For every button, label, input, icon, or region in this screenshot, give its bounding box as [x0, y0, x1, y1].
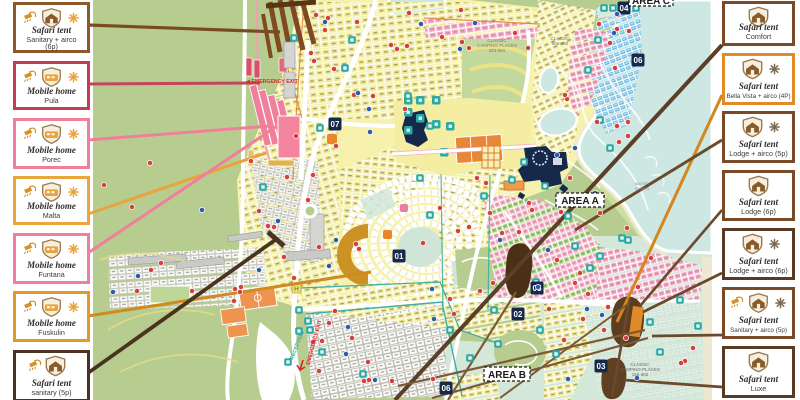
svg-text:Pula: Pula: [44, 96, 58, 105]
svg-text:424-561: 424-561: [489, 48, 506, 53]
svg-text:(6p): (6p): [45, 42, 58, 51]
svg-text:GAMES: GAMES: [635, 186, 650, 191]
svg-text:AREA C: AREA C: [632, 0, 670, 7]
svg-text:03: 03: [597, 362, 606, 371]
svg-text:AREA B: AREA B: [488, 370, 526, 381]
svg-text:Funtana: Funtana: [38, 270, 64, 279]
svg-text:Lodge (6p): Lodge (6p): [741, 207, 776, 216]
svg-text:Bella Vista + airco (4P): Bella Vista + airco (4P): [726, 93, 790, 100]
svg-text:Fuskulin: Fuskulin: [38, 328, 65, 337]
svg-text:Mobile home: Mobile home: [26, 145, 76, 155]
svg-text:Mobile home: Mobile home: [26, 260, 76, 270]
svg-text:Safari tent: Safari tent: [739, 22, 779, 32]
svg-text:07: 07: [331, 120, 340, 129]
svg-text:Lodge + airco (5p): Lodge + airco (5p): [729, 149, 788, 158]
svg-text:Lodge + airco (6p): Lodge + airco (6p): [729, 266, 788, 275]
svg-text:Safari tent: Safari tent: [739, 81, 779, 91]
svg-text:Mobile home: Mobile home: [26, 201, 76, 211]
svg-text:Safari tent: Safari tent: [739, 374, 779, 384]
svg-text:04: 04: [620, 4, 629, 13]
svg-text:06: 06: [442, 384, 451, 393]
svg-text:H: H: [294, 286, 299, 293]
svg-text:Safari tent: Safari tent: [32, 25, 72, 35]
svg-text:Comfort: Comfort: [746, 32, 772, 41]
svg-text:AREA A: AREA A: [561, 196, 599, 207]
svg-text:Mobile home: Mobile home: [26, 318, 76, 328]
svg-text:Porec: Porec: [42, 155, 61, 164]
svg-text:01: 01: [395, 252, 404, 261]
svg-text:06: 06: [634, 56, 643, 65]
svg-text:Safari tent: Safari tent: [739, 315, 779, 325]
svg-text:Safari tent: Safari tent: [32, 378, 72, 388]
svg-text:Malta: Malta: [43, 211, 61, 220]
svg-text:sanitary (5p): sanitary (5p): [32, 388, 72, 397]
svg-text:02: 02: [514, 310, 523, 319]
svg-text:Mobile home: Mobile home: [26, 86, 76, 96]
svg-text:Luxe: Luxe: [751, 384, 767, 393]
svg-text:Safari tent: Safari tent: [739, 256, 779, 266]
svg-text:Sanitary + airco (5p): Sanitary + airco (5p): [730, 327, 787, 334]
svg-text:◀ EMERGENCY EXIT: ◀ EMERGENCY EXIT: [245, 79, 299, 85]
svg-text:156-302: 156-302: [632, 372, 649, 377]
svg-text:568-580: 568-580: [552, 41, 569, 46]
svg-text:Safari tent: Safari tent: [739, 197, 779, 207]
svg-text:Safari tent: Safari tent: [739, 139, 779, 149]
